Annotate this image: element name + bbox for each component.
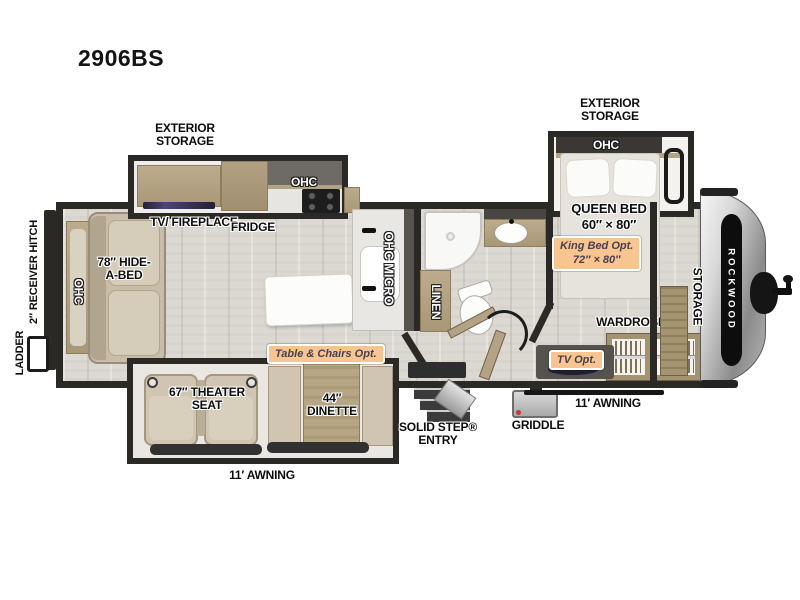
dinette-label: 44″ DINETTE bbox=[299, 392, 365, 419]
vanity-ohc bbox=[484, 209, 546, 219]
slide-wardrobe-door bbox=[664, 148, 684, 204]
receiver-hitch-label: 2″ RECEIVER HITCH bbox=[28, 207, 42, 337]
front-cap-bottom-trim bbox=[700, 380, 738, 388]
solid-step-entry-label: SOLID STEP® ENTRY bbox=[392, 421, 484, 448]
pillow-left bbox=[565, 158, 611, 198]
sofa-cushion-bottom bbox=[108, 290, 160, 356]
peninsula-edge bbox=[404, 209, 414, 331]
awning-right-label: 11′ AWNING bbox=[558, 397, 658, 410]
bath-sink-icon bbox=[494, 222, 528, 244]
ladder-label: LADDER bbox=[14, 323, 28, 383]
pillow-right bbox=[612, 158, 658, 198]
ohc-micro-label: OHC MICRO bbox=[383, 213, 396, 325]
fridge-cabinet bbox=[221, 161, 268, 211]
fridge-label: FRIDGE bbox=[222, 221, 284, 234]
front-divider-wall bbox=[650, 202, 657, 388]
kitchen-island bbox=[264, 273, 354, 326]
bath-faucet-icon bbox=[509, 219, 514, 224]
front-storage-cabinet bbox=[660, 286, 688, 376]
awning-rail-right bbox=[524, 390, 664, 395]
queen-bed-label: QUEEN BED bbox=[553, 202, 665, 217]
tv-fireplace-cabinet bbox=[137, 165, 221, 207]
kitchen-ohc-label: OHC bbox=[284, 176, 324, 189]
floor-mat-left bbox=[150, 444, 262, 455]
sofa-backrest bbox=[90, 216, 106, 360]
entry-landing-mat bbox=[408, 362, 466, 378]
table-chairs-option-badge: Table & Chairs Opt. bbox=[267, 344, 385, 364]
page-title: 2906BS bbox=[78, 45, 164, 72]
faucet-icon-2 bbox=[362, 286, 376, 291]
brand-label: ROCKWOOD bbox=[726, 215, 737, 365]
shower-drain-icon bbox=[446, 232, 455, 241]
theater-seat-label: 67″ THEATER SEAT bbox=[157, 386, 257, 413]
queen-bed-size-label: 60″ × 80″ bbox=[553, 218, 665, 233]
tv-strip bbox=[143, 202, 215, 209]
floor-mat-right bbox=[267, 442, 369, 453]
floorplan-canvas: 2906BS LADDER 2″ RECEIVER HITCH OHC 78″ … bbox=[0, 0, 800, 600]
linen-label: LINEN bbox=[430, 274, 442, 330]
king-bed-option-title: King Bed Opt. bbox=[560, 239, 633, 253]
front-cap-top-trim bbox=[700, 188, 738, 196]
tv-option-badge: TV Opt. bbox=[549, 350, 604, 370]
hide-a-bed-label: 78″ HIDE-A-BED bbox=[94, 256, 154, 283]
exterior-storage-right-label: EXTERIOR STORAGE bbox=[550, 97, 670, 124]
ladder-icon bbox=[27, 336, 49, 372]
stove-icon bbox=[302, 189, 340, 213]
bed-ohc-label: OHC bbox=[576, 139, 636, 152]
griddle-knob bbox=[516, 410, 521, 415]
exterior-storage-left-label: EXTERIOR STORAGE bbox=[125, 122, 245, 149]
front-storage-label: STORAGE bbox=[691, 259, 704, 335]
dinette-bench-right bbox=[362, 366, 393, 446]
awning-bottom-label: 11′ AWNING bbox=[212, 469, 312, 482]
king-bed-option-size: 72″ × 80″ bbox=[560, 253, 633, 267]
dinette-bench-left bbox=[268, 366, 301, 446]
hitch-knob bbox=[783, 275, 793, 283]
griddle-label: GRIDDLE bbox=[499, 419, 577, 432]
faucet-icon bbox=[362, 228, 376, 233]
king-bed-option-badge: King Bed Opt. 72″ × 80″ bbox=[552, 236, 641, 271]
rear-ohc-label: OHC bbox=[72, 272, 85, 312]
